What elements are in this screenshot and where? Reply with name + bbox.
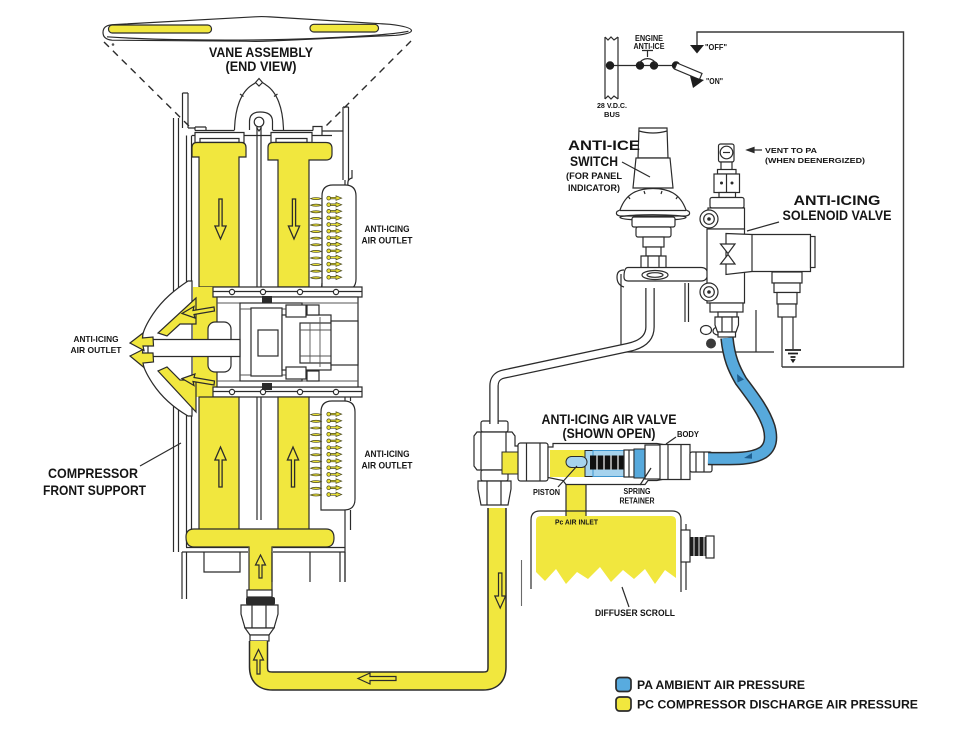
svg-text:DIFFUSER SCROLL: DIFFUSER SCROLL [595,608,675,619]
svg-text:(SHOWN OPEN): (SHOWN OPEN) [563,426,656,441]
svg-text:BODY: BODY [677,430,700,439]
svg-text:(FOR PANEL: (FOR PANEL [566,171,622,182]
svg-text:AIR OUTLET: AIR OUTLET [71,345,123,355]
svg-text:"ON": "ON" [706,77,723,86]
svg-text:Pc AIR INLET: Pc AIR INLET [555,518,598,527]
svg-text:28 V.D.C.: 28 V.D.C. [597,101,627,110]
svg-text:INDICATOR): INDICATOR) [568,183,620,194]
svg-text:(WHEN DEENERGIZED): (WHEN DEENERGIZED) [765,156,866,165]
svg-text:ANTI-ICING: ANTI-ICING [794,193,881,208]
svg-text:"OFF": "OFF" [705,43,727,52]
svg-text:PA AMBIENT AIR PRESSURE: PA AMBIENT AIR PRESSURE [637,679,805,692]
svg-text:VANE ASSEMBLY: VANE ASSEMBLY [209,45,313,60]
svg-text:(END VIEW): (END VIEW) [226,59,297,74]
svg-text:FRONT SUPPORT: FRONT SUPPORT [43,482,146,498]
svg-text:ANTI-ICING: ANTI-ICING [365,449,410,460]
svg-text:ANTI-ICE: ANTI-ICE [634,42,665,51]
svg-text:BUS: BUS [604,110,620,119]
svg-text:PC COMPRESSOR DISCHARGE AIR PR: PC COMPRESSOR DISCHARGE AIR PRESSURE [637,699,918,712]
svg-text:SWITCH: SWITCH [570,153,618,169]
svg-text:COMPRESSOR: COMPRESSOR [48,465,138,481]
svg-text:ANTI-ICING: ANTI-ICING [365,224,410,235]
svg-text:ANTI-ICING: ANTI-ICING [74,334,119,344]
svg-text:AIR OUTLET: AIR OUTLET [362,461,413,472]
svg-text:RETAINER: RETAINER [620,497,655,506]
svg-text:ANTI-ICING AIR VALVE: ANTI-ICING AIR VALVE [542,412,677,427]
svg-text:PISTON: PISTON [533,488,560,497]
svg-text:SOLENOID VALVE: SOLENOID VALVE [783,208,892,223]
svg-text:AIR OUTLET: AIR OUTLET [362,236,413,247]
svg-text:VENT TO PA: VENT TO PA [765,146,818,155]
svg-text:SPRING: SPRING [624,487,651,496]
svg-text:ANTI-ICE: ANTI-ICE [568,137,640,153]
